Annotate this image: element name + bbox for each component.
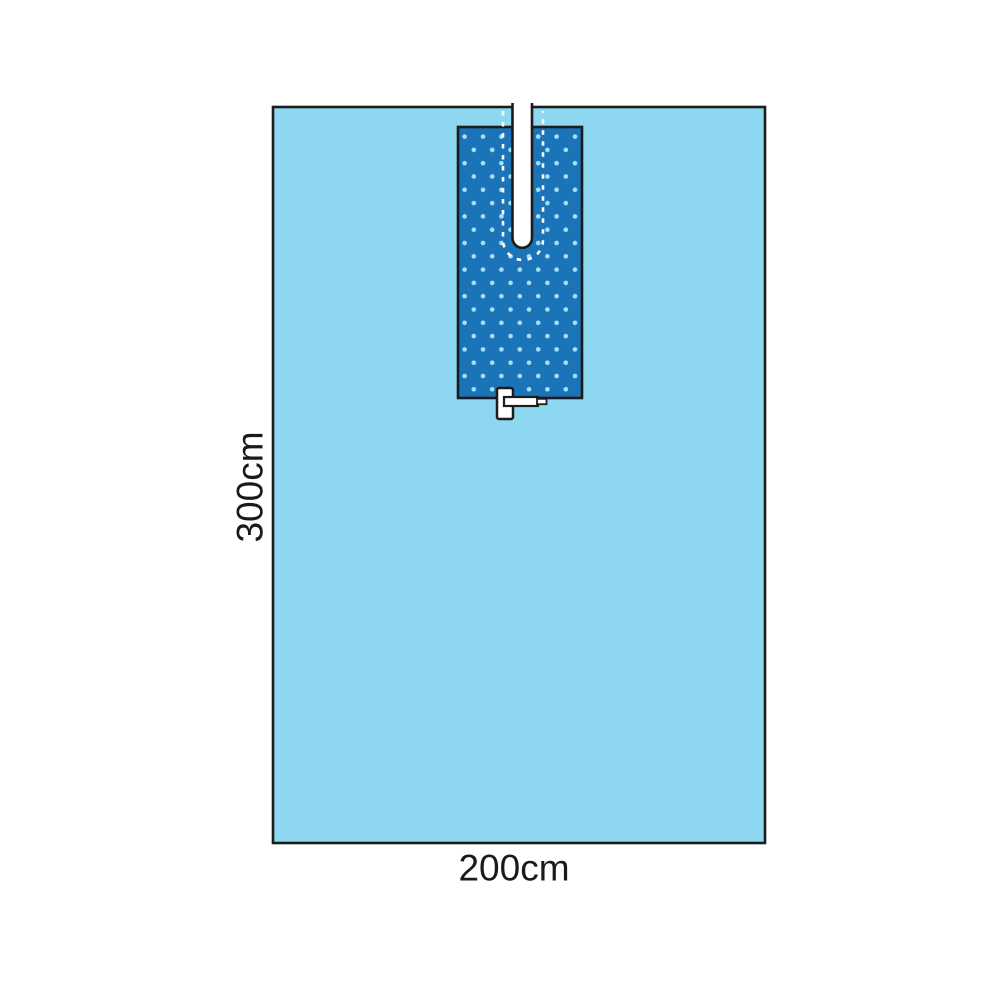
tube-holder-bar: [504, 397, 538, 406]
fenestration-slit: [513, 103, 533, 248]
width-dimension-label: 200cm: [458, 850, 569, 887]
height-dimension-label: 300cm: [232, 431, 269, 542]
surgical-drape-diagram: 300cm 200cm: [0, 0, 1000, 1000]
tube-holder-nib: [537, 399, 547, 404]
